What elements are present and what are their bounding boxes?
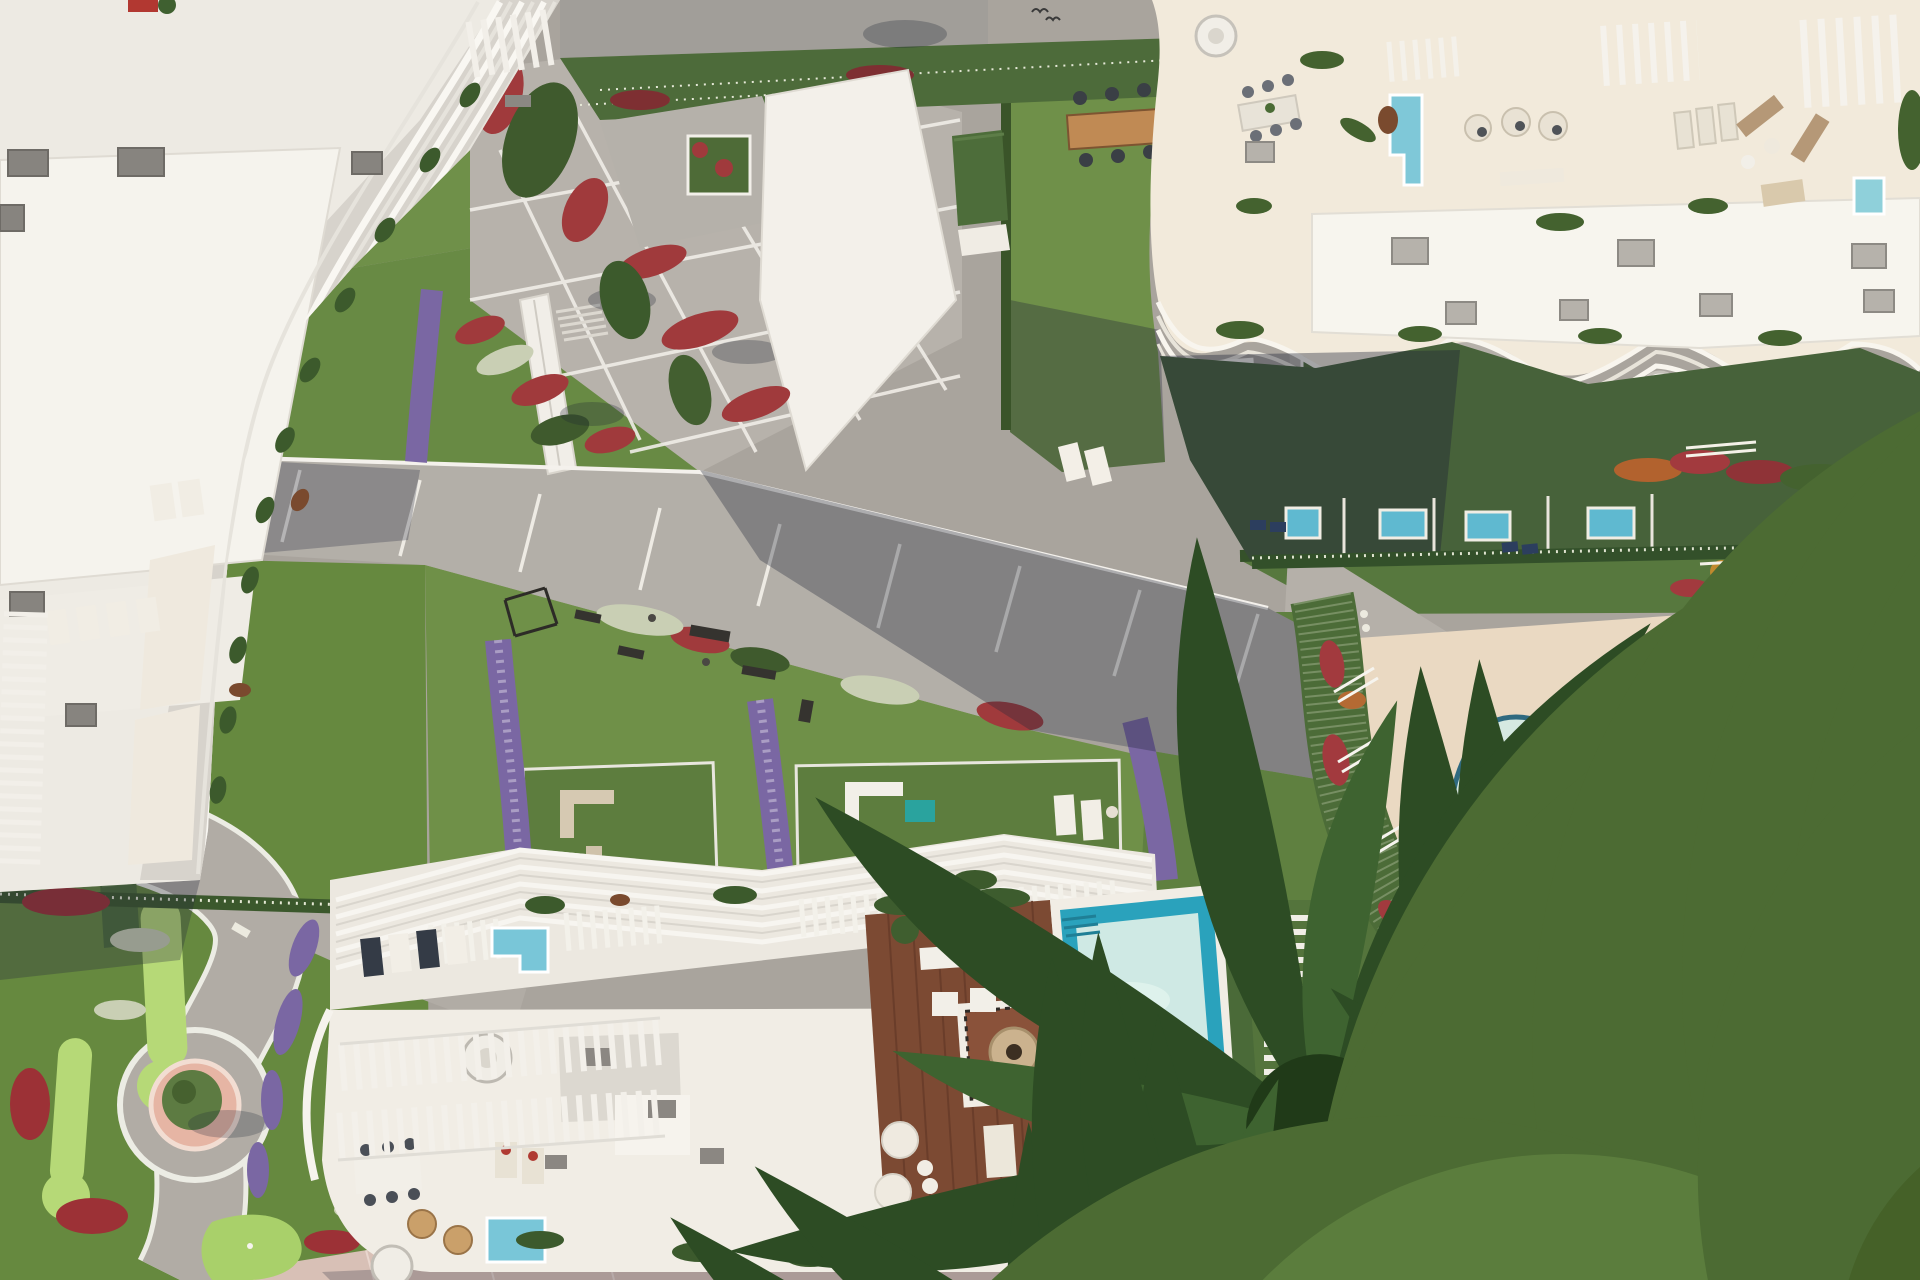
garden-dining-table: [1067, 109, 1165, 150]
green-shed: [952, 130, 1008, 226]
rattan-chair: [444, 1226, 472, 1254]
scene-svg: [0, 0, 1920, 1280]
teal-rug: [905, 800, 935, 822]
sun-lounger: [1054, 794, 1077, 835]
upper-roof-band: [1312, 198, 1920, 348]
spiral-stair: [372, 1246, 412, 1280]
red-awning: [128, 0, 158, 12]
sun-lounger: [1081, 799, 1104, 840]
aerial-site-plan: [0, 0, 1920, 1280]
sun-lounger: [983, 1124, 1017, 1178]
rooftop-pool: [1854, 178, 1884, 214]
egg-chair: [882, 1122, 918, 1158]
rattan-chair: [408, 1210, 436, 1238]
